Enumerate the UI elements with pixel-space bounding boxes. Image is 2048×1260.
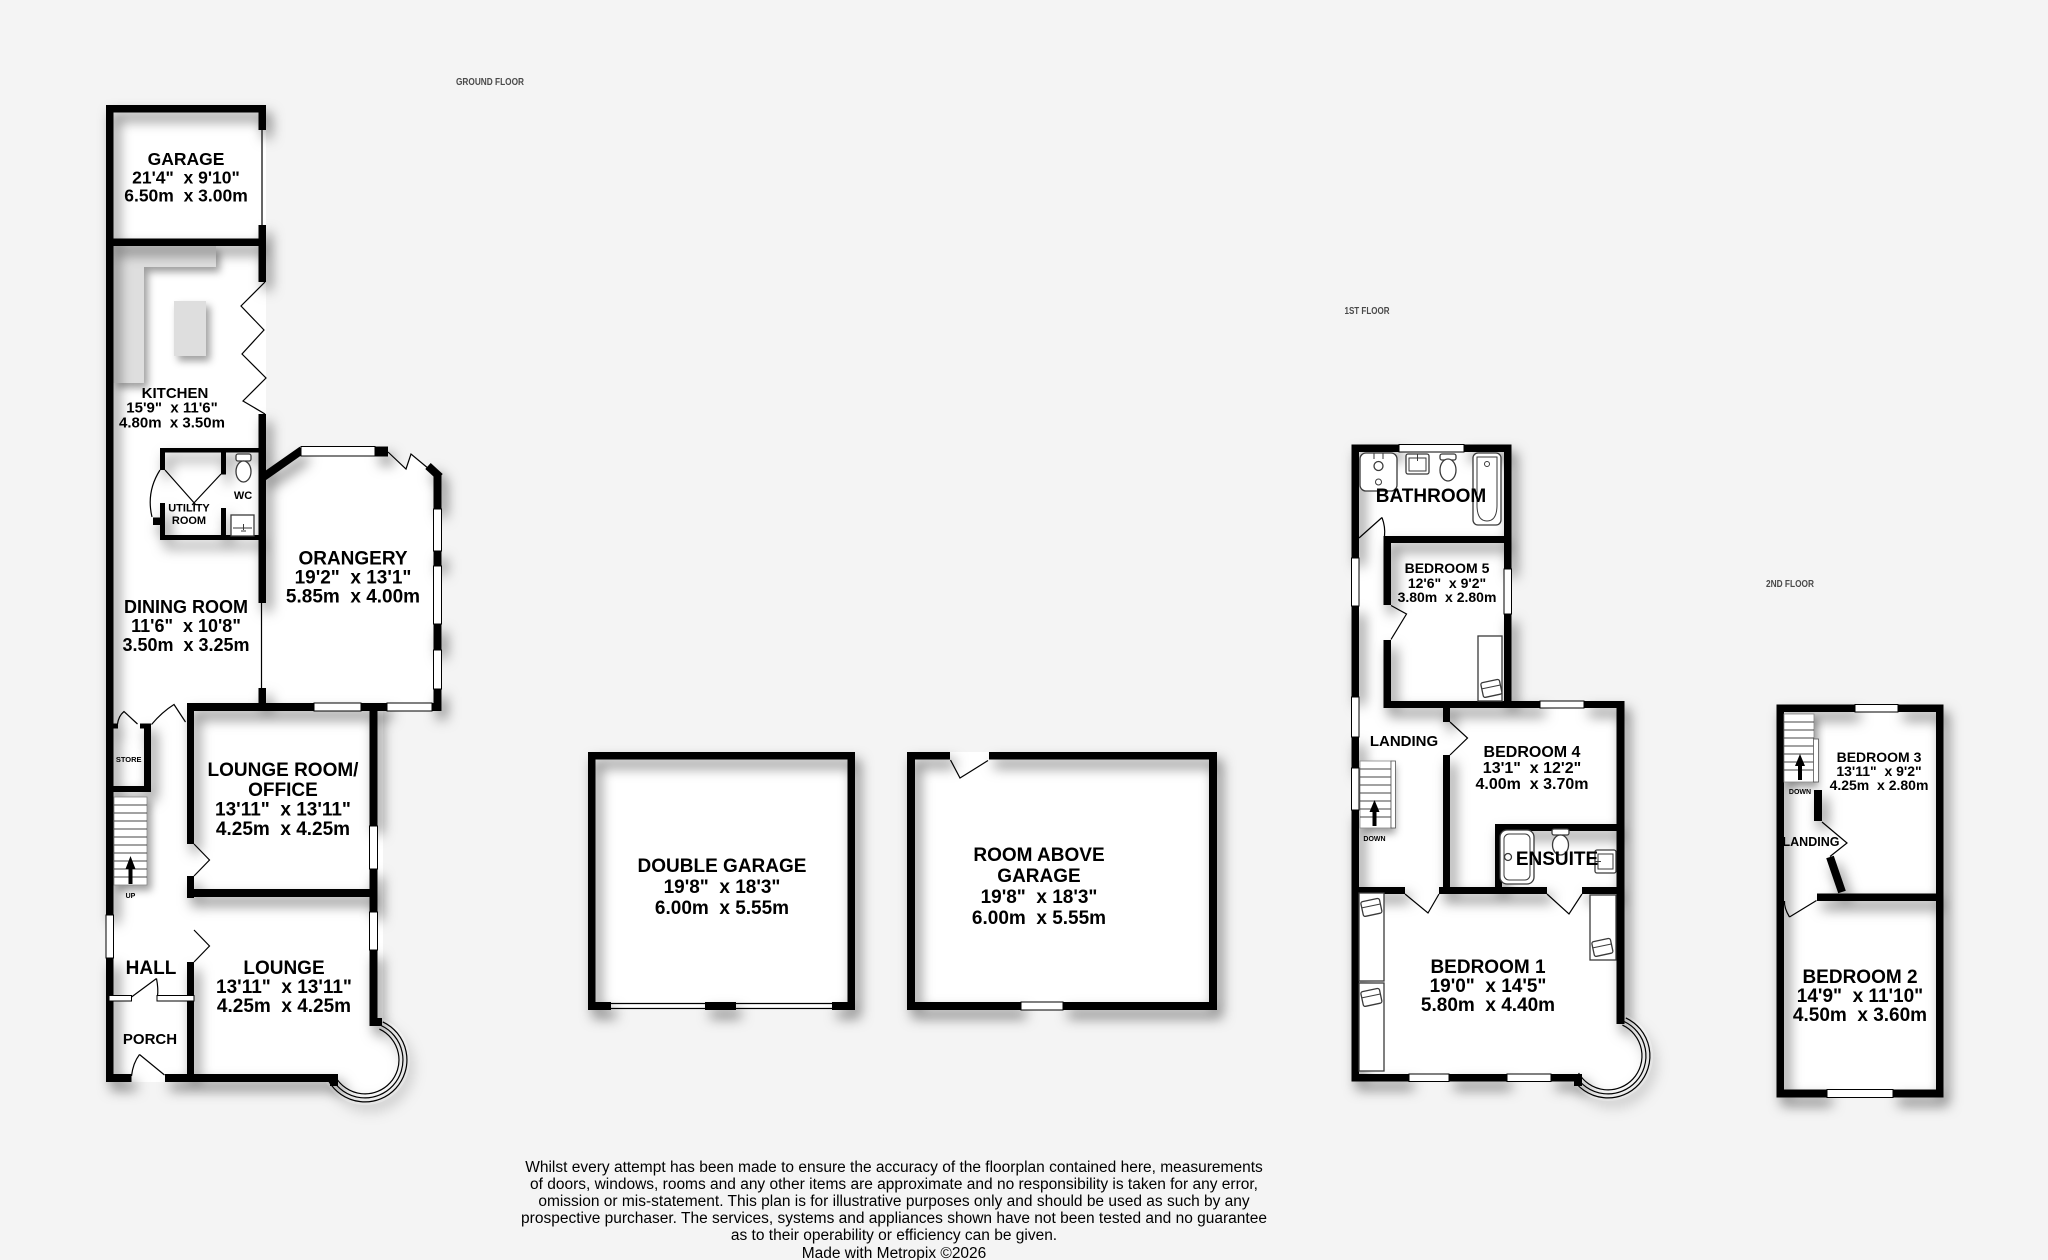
svg-text:LANDING: LANDING bbox=[1783, 835, 1840, 849]
svg-text:4.25m x 2.80m: 4.25m x 2.80m bbox=[1830, 777, 1929, 793]
svg-text:GARAGE: GARAGE bbox=[148, 149, 225, 169]
svg-text:UTILITY: UTILITY bbox=[168, 503, 210, 515]
svg-text:BEDROOM 4: BEDROOM 4 bbox=[1484, 744, 1581, 761]
svg-text:GARAGE: GARAGE bbox=[997, 866, 1080, 887]
svg-text:LOUNGE: LOUNGE bbox=[243, 958, 324, 979]
svg-text:LANDING: LANDING bbox=[1370, 733, 1438, 750]
svg-text:11'6" x 10'8": 11'6" x 10'8" bbox=[131, 616, 241, 636]
svg-text:of doors, windows, rooms and a: of doors, windows, rooms and any other i… bbox=[530, 1176, 1258, 1193]
svg-text:13'11" x 13'11": 13'11" x 13'11" bbox=[216, 977, 352, 998]
svg-text:5.80m x 4.40m: 5.80m x 4.40m bbox=[1421, 995, 1555, 1016]
svg-text:LOUNGE ROOM/: LOUNGE ROOM/ bbox=[208, 760, 360, 781]
svg-text:4.25m x 4.25m: 4.25m x 4.25m bbox=[217, 996, 351, 1017]
svg-text:13'1" x 12'2": 13'1" x 12'2" bbox=[1483, 760, 1581, 777]
svg-text:DOWN: DOWN bbox=[1363, 836, 1385, 843]
svg-text:3.50m x 3.25m: 3.50m x 3.25m bbox=[122, 635, 249, 655]
svg-text:ROOM ABOVE: ROOM ABOVE bbox=[973, 845, 1104, 866]
svg-text:HALL: HALL bbox=[126, 958, 177, 979]
svg-text:5.85m x 4.00m: 5.85m x 4.00m bbox=[286, 587, 420, 608]
svg-text:3.80m x 2.80m: 3.80m x 2.80m bbox=[1398, 589, 1497, 605]
svg-text:14'9" x 11'10": 14'9" x 11'10" bbox=[1797, 986, 1923, 1007]
svg-text:Made with Metropix ©2026: Made with Metropix ©2026 bbox=[802, 1245, 987, 1260]
svg-text:BEDROOM 2: BEDROOM 2 bbox=[1802, 967, 1917, 988]
svg-text:prospective purchaser. The ser: prospective purchaser. The services, sys… bbox=[521, 1210, 1267, 1227]
svg-text:ROOM: ROOM bbox=[172, 515, 206, 527]
svg-text:UP: UP bbox=[126, 893, 136, 900]
svg-text:6.50m x 3.00m: 6.50m x 3.00m bbox=[124, 186, 248, 206]
svg-text:STORE: STORE bbox=[116, 755, 142, 764]
svg-text:4.25m x 4.25m: 4.25m x 4.25m bbox=[216, 819, 350, 840]
svg-text:as to their operability or eff: as to their operability or efficiency ca… bbox=[731, 1227, 1057, 1244]
svg-text:19'0" x 14'5": 19'0" x 14'5" bbox=[1430, 976, 1547, 997]
svg-text:19'8" x 18'3": 19'8" x 18'3" bbox=[981, 887, 1098, 908]
svg-text:BEDROOM 5: BEDROOM 5 bbox=[1405, 560, 1490, 576]
svg-text:BEDROOM 1: BEDROOM 1 bbox=[1430, 957, 1546, 978]
svg-text:2ND FLOOR: 2ND FLOOR bbox=[1766, 578, 1814, 590]
svg-text:GROUND FLOOR: GROUND FLOOR bbox=[456, 76, 524, 88]
svg-text:ENSUITE: ENSUITE bbox=[1516, 849, 1598, 870]
svg-text:DINING ROOM: DINING ROOM bbox=[124, 597, 248, 617]
svg-text:13'11" x 13'11": 13'11" x 13'11" bbox=[215, 800, 351, 821]
svg-text:6.00m x 5.55m: 6.00m x 5.55m bbox=[655, 898, 789, 919]
svg-text:19'8" x 18'3": 19'8" x 18'3" bbox=[664, 877, 781, 898]
svg-text:1ST FLOOR: 1ST FLOOR bbox=[1345, 305, 1390, 317]
svg-text:BATHROOM: BATHROOM bbox=[1376, 486, 1486, 507]
svg-text:6.00m x 5.55m: 6.00m x 5.55m bbox=[972, 908, 1106, 929]
svg-text:4.00m x 3.70m: 4.00m x 3.70m bbox=[1476, 776, 1589, 793]
svg-text:OFFICE: OFFICE bbox=[248, 780, 318, 801]
svg-text:ORANGERY: ORANGERY bbox=[298, 549, 407, 570]
svg-text:DOUBLE GARAGE: DOUBLE GARAGE bbox=[638, 856, 807, 877]
svg-text:WC: WC bbox=[234, 490, 252, 502]
svg-text:4.50m x 3.60m: 4.50m x 3.60m bbox=[1793, 1005, 1927, 1026]
svg-text:19'2" x 13'1": 19'2" x 13'1" bbox=[295, 568, 412, 589]
svg-text:4.80m x 3.50m: 4.80m x 3.50m bbox=[119, 415, 225, 432]
svg-text:21'4" x 9'10": 21'4" x 9'10" bbox=[132, 168, 240, 188]
svg-text:DOWN: DOWN bbox=[1789, 789, 1811, 796]
svg-text:omission or mis-statement. Thi: omission or mis-statement. This plan is … bbox=[538, 1193, 1250, 1210]
svg-text:Whilst every attempt has been: Whilst every attempt has been made to en… bbox=[525, 1159, 1263, 1176]
svg-text:PORCH: PORCH bbox=[123, 1031, 177, 1048]
